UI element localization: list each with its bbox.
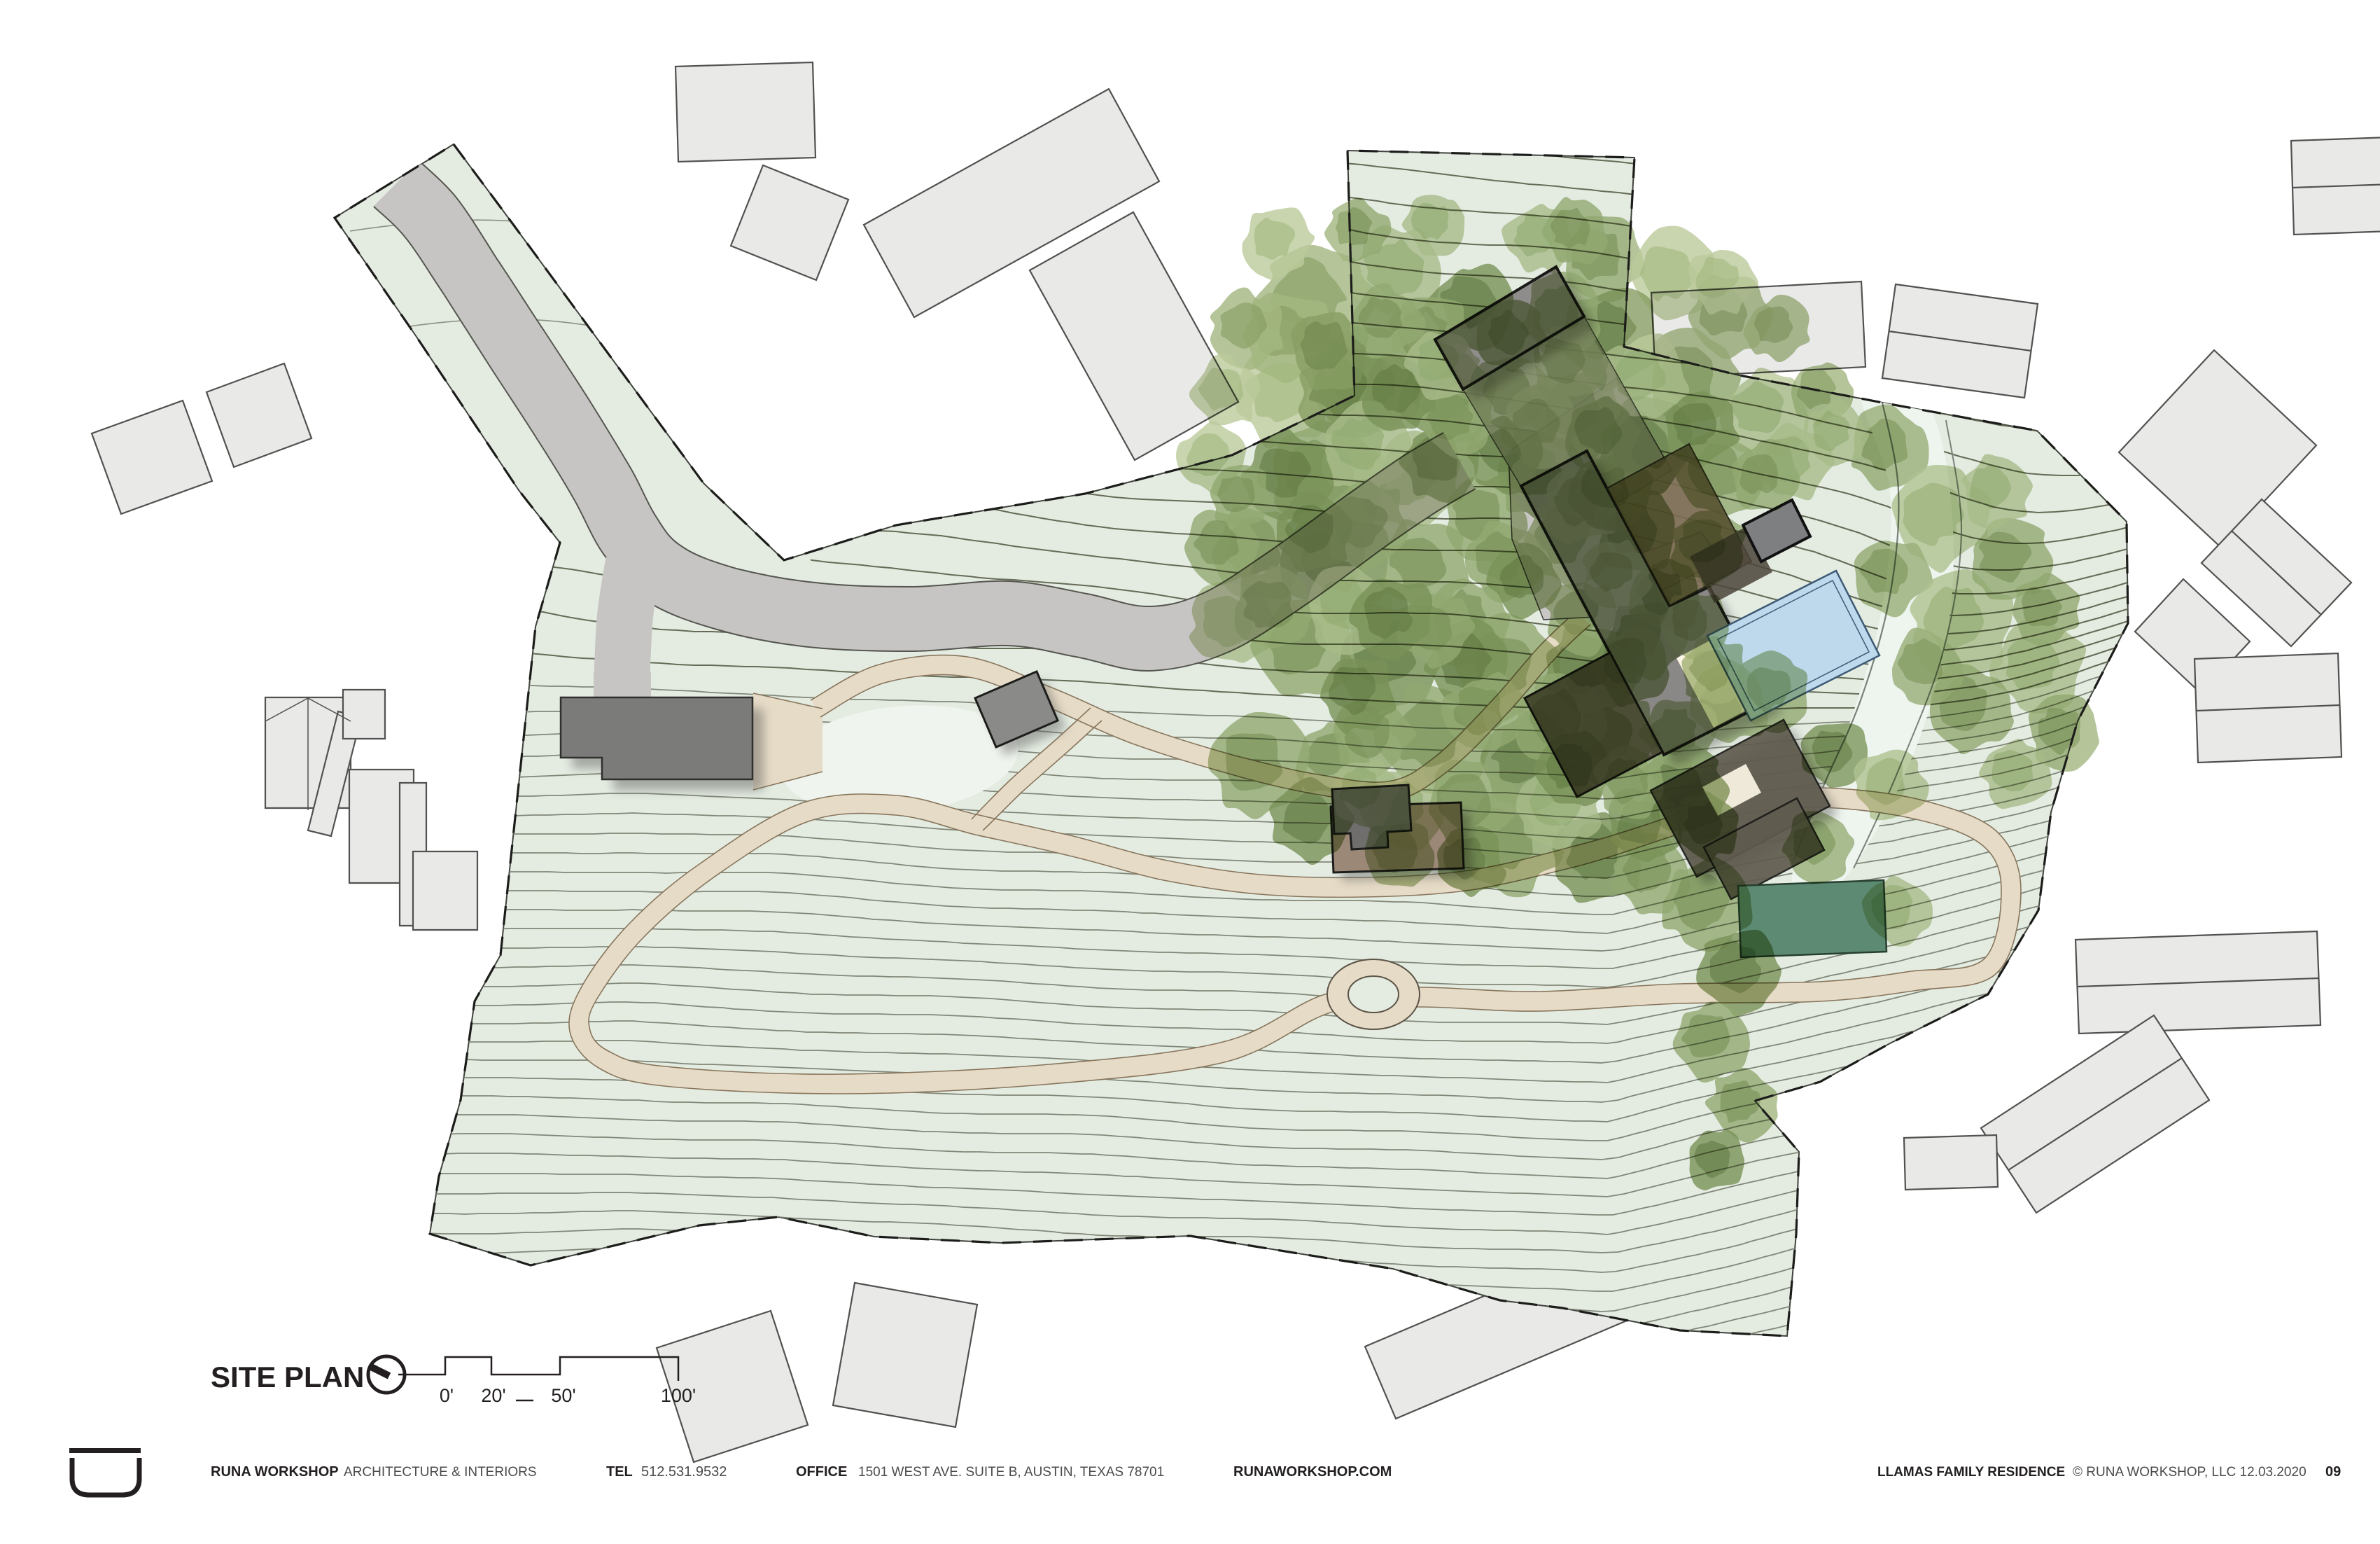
svg-text:50': 50' (551, 1385, 575, 1406)
svg-text:100': 100' (661, 1385, 696, 1406)
svg-text:20': 20' (481, 1385, 505, 1406)
svg-text:0': 0' (440, 1385, 454, 1406)
